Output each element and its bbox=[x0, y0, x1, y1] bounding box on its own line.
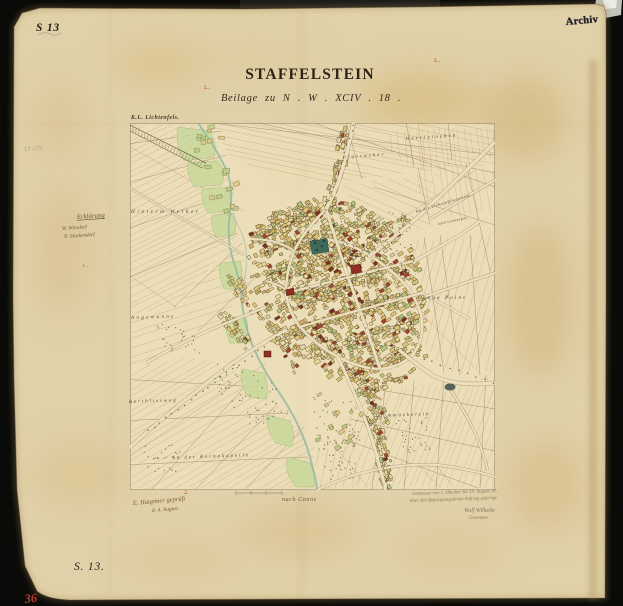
svg-text:Hinterm Weiher: Hinterm Weiher bbox=[130, 209, 201, 215]
svg-text:2.: 2. bbox=[184, 490, 189, 496]
svg-text:K.L. Lichtenfels.: K.L. Lichtenfels. bbox=[130, 115, 179, 121]
svg-text:STAFFELSTEIN: STAFFELSTEIN bbox=[245, 66, 375, 83]
svg-text:S. 13.: S. 13. bbox=[74, 561, 105, 573]
svg-text:L..: L.. bbox=[83, 263, 88, 268]
svg-text:Wolf Wilhelm: Wolf Wilhelm bbox=[464, 507, 495, 514]
svg-text:36: 36 bbox=[23, 591, 39, 606]
svg-text:Geometer: Geometer bbox=[469, 516, 489, 521]
svg-text:Beilage zu N . W . XCIV . 18: Beilage zu N . W . XCIV . 18 . bbox=[221, 93, 401, 104]
svg-text:Lange Point: Lange Point bbox=[417, 296, 467, 301]
svg-text:nach Canne: nach Canne bbox=[282, 497, 317, 503]
svg-text:L..: L.. bbox=[433, 58, 440, 64]
svg-text:L..: L.. bbox=[203, 85, 210, 91]
svg-text:S 13: S 13 bbox=[36, 22, 60, 34]
